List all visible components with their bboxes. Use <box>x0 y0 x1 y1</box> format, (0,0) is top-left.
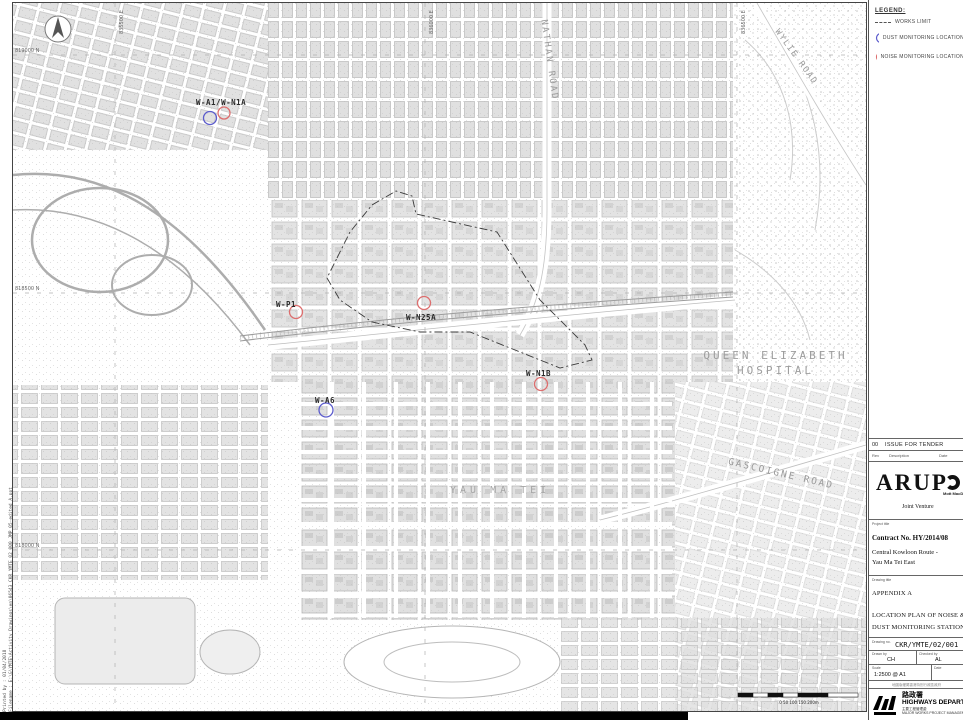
drawing-no-value: CKR/YMTE/02/001 <box>895 641 958 649</box>
drawn-by-label: Drawn by <box>872 652 887 656</box>
plot-margin-notes: Printed by : 01/04/2018 Filename : E:\G\… <box>3 482 14 712</box>
hospital-line1: QUEEN ELIZABETH <box>688 348 863 363</box>
project-line2: Yau Ma Tei East <box>872 559 915 566</box>
dept-office-en: MAJOR WORKS PROJECT MANAGEMENT OFFICE <box>902 711 963 716</box>
dust-circle-icon <box>875 32 879 44</box>
map-copyright-stamp: 地圖版權屬香港特別行政區政府 <box>869 680 963 688</box>
works-limit-swatch <box>875 22 891 23</box>
rev-col-desc: Description <box>889 453 909 458</box>
dept-name-cn: 路政署 <box>902 691 963 699</box>
place-label-hospital: QUEEN ELIZABETH HOSPITAL <box>688 348 863 378</box>
contract-number: Contract No. HY/2014/08 <box>872 534 948 542</box>
grid-label-north: 818000 N <box>15 543 39 549</box>
revision-number: 00 <box>872 442 878 448</box>
station-label: W-P1 <box>276 300 296 309</box>
date-label: Date <box>934 666 941 670</box>
revision-row: 00 ISSUE FOR TENDER <box>869 438 963 451</box>
filename-note: Filename : E:\G\YMTE\Activity Drawings\e… <box>9 482 15 712</box>
cell-divider <box>916 651 917 665</box>
drawing-title-line1: LOCATION PLAN OF NOISE & <box>872 612 963 619</box>
north-arrow-icon <box>45 16 71 42</box>
drawing-title-label: Drawing title <box>872 578 891 582</box>
bottom-border-bar <box>0 712 688 720</box>
project-title-label: Project title <box>872 522 889 526</box>
drawing-no-label: Drawing no. <box>872 640 894 644</box>
checked-by-value: AL <box>935 657 942 663</box>
hospital-line2: HOSPITAL <box>688 363 863 378</box>
station-label: W-A1/W-N1A <box>196 98 246 107</box>
legend-title: LEGEND: <box>875 8 963 14</box>
mott-macdonald-logo-icon <box>945 475 960 490</box>
station-label: W-A6 <box>315 396 335 405</box>
dept-name-en: HIGHWAYS DEPARTMENT <box>902 699 963 707</box>
checked-by-label: Checked by <box>919 652 937 656</box>
consultant-block: ARUP Mott MacDonald Joint Venture <box>869 462 963 519</box>
drawing-title-line2: DUST MONITORING STATIONS <box>872 624 963 631</box>
joint-venture-label: Joint Venture <box>902 504 934 510</box>
grid-label-north: 819000 N <box>15 48 39 54</box>
legend-item-works-limit: WORKS LIMIT <box>875 19 963 25</box>
works-limit-label: WORKS LIMIT <box>895 19 931 25</box>
legend-item-noise: NOISE MONITORING LOCATION <box>875 51 963 63</box>
drawing-title-block: Drawing title APPENDIX A LOCATION PLAN O… <box>869 575 963 637</box>
drawing-number-row: Drawing no. CKR/YMTE/02/001 <box>869 637 963 650</box>
legend: LEGEND: WORKS LIMIT DUST MONITORING LOCA… <box>875 8 963 70</box>
arup-logo: ARUP <box>876 470 948 496</box>
grid-label-north: 818500 N <box>15 286 39 292</box>
station-label: W-N25A <box>406 313 436 322</box>
cell-divider <box>931 665 932 681</box>
grid-label-east: 836500 E <box>741 10 747 34</box>
scale-bar <box>738 693 858 697</box>
appendix-label: APPENDIX A <box>872 590 912 597</box>
highways-dept-logo-icon <box>872 694 898 716</box>
scale-bar-label: 0 50 100 150 200m <box>738 700 860 705</box>
rev-col-no: Rev <box>872 453 879 458</box>
title-block-panel: LEGEND: WORKS LIMIT DUST MONITORING LOCA… <box>868 0 963 720</box>
grid-label-east: 835500 E <box>119 10 125 34</box>
drawing-page: W-A1/W-N1A W-P1 W-N25A W-N1B W-A6 NATHAN… <box>0 0 963 720</box>
legend-item-dust: DUST MONITORING LOCATION <box>875 32 963 44</box>
scale-date-row: Scale 1:2500 @ A1 Date <box>869 664 963 680</box>
revision-header-row: Rev Description Date <box>869 451 963 462</box>
revision-description: ISSUE FOR TENDER <box>885 442 943 448</box>
rev-col-date: Date <box>939 453 947 458</box>
dust-label: DUST MONITORING LOCATION <box>883 35 963 41</box>
highways-dept-block: 路政署 HIGHWAYS DEPARTMENT 主要工程管理處 MAJOR WO… <box>869 688 963 720</box>
project-line1: Central Kowloon Route - <box>872 549 938 556</box>
station-label: W-N1B <box>526 369 551 378</box>
drawn-by-value: CH <box>887 657 895 663</box>
partner-name: Mott MacDonald <box>943 491 963 496</box>
grid-label-east: 836000 E <box>429 10 435 34</box>
noise-label: NOISE MONITORING LOCATION <box>881 54 963 60</box>
scale-label: Scale <box>872 666 881 670</box>
scale-value: 1:2500 @ A1 <box>874 672 906 678</box>
project-block: Project title Contract No. HY/2014/08 Ce… <box>869 519 963 575</box>
drawn-checked-row: Drawn by CH Checked by AL <box>869 650 963 664</box>
noise-circle-icon <box>875 51 877 63</box>
